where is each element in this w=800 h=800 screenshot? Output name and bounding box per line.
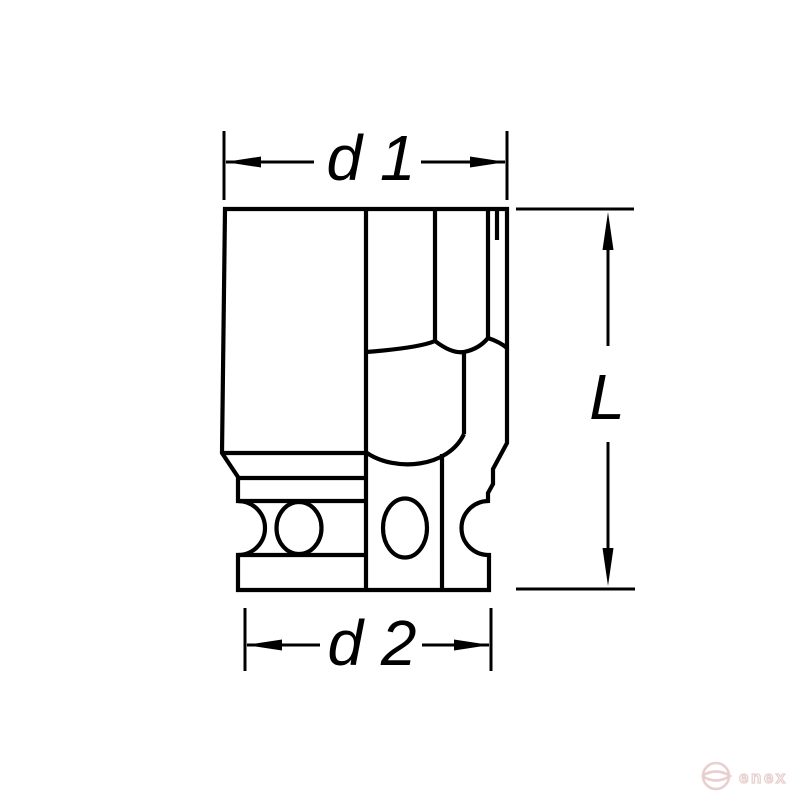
length-arrow-up bbox=[603, 212, 614, 250]
enex-logo-icon bbox=[703, 763, 729, 789]
watermark: enex bbox=[702, 763, 788, 789]
d2-arrow-left bbox=[246, 640, 282, 651]
socket-body bbox=[222, 209, 507, 590]
dimension-d1: d 1 bbox=[224, 122, 507, 200]
hex-facet-lines bbox=[366, 209, 497, 590]
dimension-d2: d 2 bbox=[245, 607, 491, 679]
d2-label: d 2 bbox=[328, 607, 417, 679]
socket-technical-drawing: d 1 d 2 L enex bbox=[0, 0, 800, 800]
d1-label: d 1 bbox=[327, 122, 416, 194]
d1-arrow-right bbox=[470, 157, 506, 168]
neck-transition-curve bbox=[367, 434, 464, 464]
pin-hole-center-ellipse bbox=[383, 499, 427, 558]
length-label: L bbox=[589, 361, 625, 433]
drawing-canvas: d 1 d 2 L enex bbox=[0, 0, 800, 800]
d2-arrow-right bbox=[454, 640, 490, 651]
d1-arrow-left bbox=[225, 157, 261, 168]
pin-hole-left-ellipse bbox=[277, 502, 322, 554]
dimension-length: L bbox=[516, 209, 635, 589]
hex-opening-scallops bbox=[366, 338, 507, 352]
length-arrow-down bbox=[603, 548, 614, 586]
enex-logo-lens-icon bbox=[702, 772, 730, 781]
watermark-text: enex bbox=[739, 768, 788, 787]
